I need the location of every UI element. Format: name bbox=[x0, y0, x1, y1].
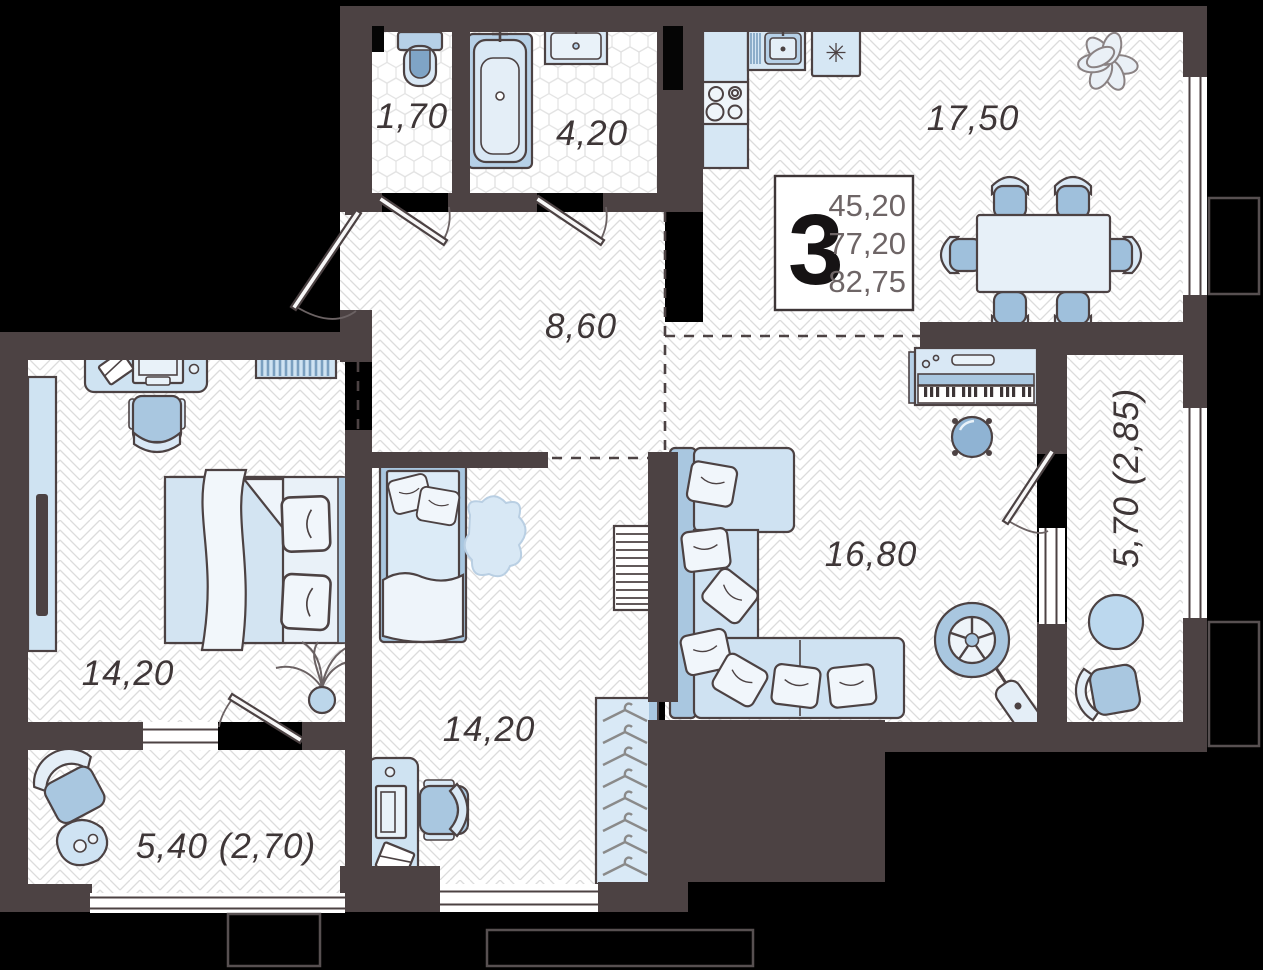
railing-top-right bbox=[1209, 198, 1259, 294]
floorplan-svg: ✳ bbox=[0, 0, 1263, 970]
unit-info-box: 3 45,20 77,20 82,75 bbox=[775, 176, 913, 310]
radiator bbox=[614, 526, 650, 610]
toilet-bowl bbox=[410, 50, 430, 78]
bathroom-area-label: 4,20 bbox=[556, 114, 628, 153]
bedroom-left-balcony-window bbox=[143, 722, 218, 750]
piano-stool bbox=[952, 417, 992, 457]
bedroom-bottom-chair bbox=[420, 780, 468, 840]
hallway-area-label: 8,60 bbox=[545, 307, 617, 346]
bedroom-bottom-desk bbox=[368, 758, 418, 884]
balcony-side-table bbox=[57, 820, 107, 865]
loggia-table bbox=[1089, 595, 1143, 649]
piano bbox=[909, 348, 1041, 405]
bedroom-left-tv-unit bbox=[28, 377, 56, 651]
loggia-area-label: 5,70 (2,85) bbox=[1107, 388, 1146, 568]
toilet bbox=[398, 32, 442, 86]
railing-bottom-right bbox=[1209, 622, 1259, 746]
railing-bottom-left bbox=[228, 914, 320, 966]
freezer-icon: ✳ bbox=[825, 39, 847, 68]
dining-table bbox=[977, 215, 1110, 292]
loggia-door-sidelight bbox=[1039, 528, 1065, 624]
tv-icon bbox=[36, 494, 48, 616]
kitchen-window bbox=[1183, 77, 1207, 295]
living-area-label: 16,80 bbox=[825, 535, 918, 574]
apartment-area-value: 77,20 bbox=[828, 226, 906, 261]
wc-area-label: 1,70 bbox=[376, 97, 448, 136]
bathtub bbox=[468, 26, 532, 168]
bedroom-left-area-label: 14,20 bbox=[82, 654, 175, 693]
bedroom-bottom-window bbox=[440, 884, 598, 912]
bed-throw bbox=[202, 470, 246, 650]
vent-shaft bbox=[663, 26, 683, 90]
bedroom-bottom-bed bbox=[380, 464, 466, 642]
bed-blanket bbox=[383, 573, 463, 642]
duct-shaft bbox=[372, 26, 384, 52]
loggia-window bbox=[1183, 408, 1207, 618]
railing-bottom-center bbox=[487, 930, 753, 966]
living-area-value: 45,20 bbox=[828, 188, 906, 223]
bedroom-left-bed bbox=[165, 470, 350, 650]
rug bbox=[465, 496, 526, 576]
balcony-railing-window bbox=[90, 893, 345, 913]
bedroom-bottom-area-label: 14,20 bbox=[443, 710, 536, 749]
kitchen-area-label: 17,50 bbox=[927, 99, 1020, 138]
floorplan-canvas: ✳ bbox=[0, 0, 1263, 970]
hallway-floor bbox=[372, 212, 665, 455]
balcony-area-label: 5,40 (2,70) bbox=[136, 827, 316, 866]
total-area-value: 82,75 bbox=[828, 264, 906, 299]
bedroom-left-chair bbox=[129, 396, 185, 452]
